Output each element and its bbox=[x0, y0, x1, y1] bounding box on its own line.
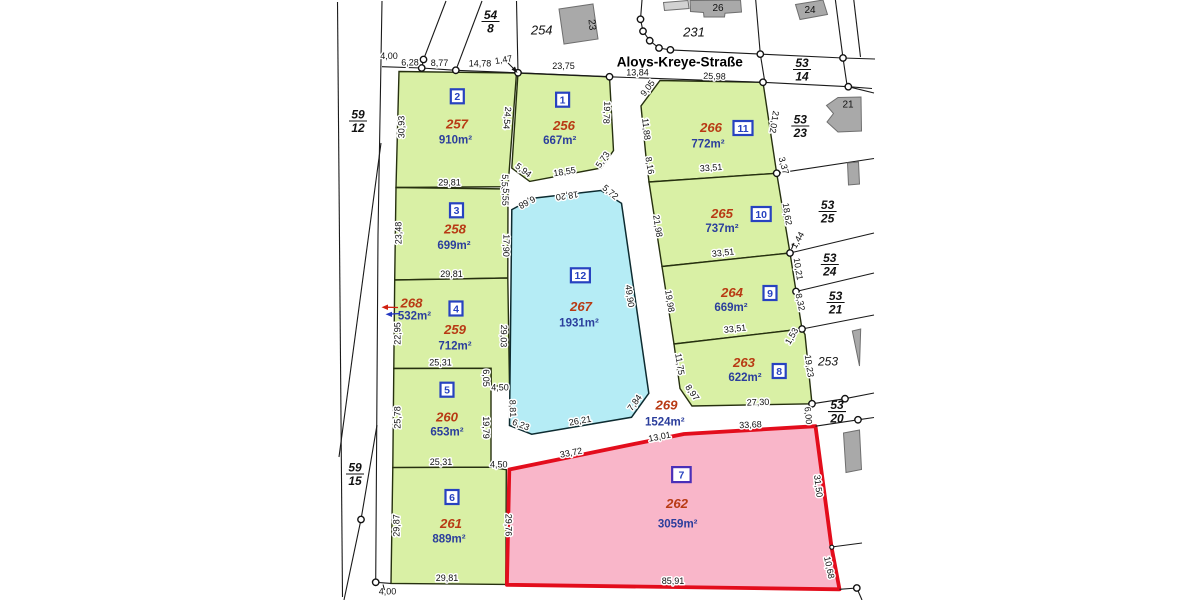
svg-text:53: 53 bbox=[829, 289, 843, 303]
svg-text:29,87: 29,87 bbox=[392, 514, 402, 537]
svg-text:22,95: 22,95 bbox=[393, 322, 403, 345]
svg-text:21: 21 bbox=[842, 100, 854, 111]
svg-text:254: 254 bbox=[530, 23, 553, 38]
svg-text:11: 11 bbox=[737, 123, 748, 135]
svg-text:15: 15 bbox=[348, 474, 362, 488]
svg-text:12: 12 bbox=[351, 121, 365, 135]
svg-text:23,75: 23,75 bbox=[552, 61, 575, 71]
svg-text:4,00: 4,00 bbox=[379, 587, 397, 597]
svg-text:5: 5 bbox=[444, 385, 450, 397]
svg-text:26: 26 bbox=[712, 3, 724, 14]
svg-text:231: 231 bbox=[682, 25, 705, 40]
svg-text:25: 25 bbox=[820, 212, 835, 226]
svg-text:889m²: 889m² bbox=[432, 533, 465, 545]
svg-text:532m²: 532m² bbox=[398, 311, 431, 323]
svg-text:260: 260 bbox=[435, 409, 459, 424]
svg-text:19,78: 19,78 bbox=[601, 101, 612, 124]
svg-text:4,00: 4,00 bbox=[380, 51, 398, 61]
svg-text:25,31: 25,31 bbox=[430, 457, 453, 467]
svg-text:737m²: 737m² bbox=[705, 223, 738, 235]
svg-text:85,91: 85,91 bbox=[662, 576, 685, 586]
svg-text:4: 4 bbox=[453, 303, 459, 315]
svg-text:258: 258 bbox=[443, 222, 467, 237]
svg-text:17,90: 17,90 bbox=[501, 234, 511, 257]
svg-text:20: 20 bbox=[829, 412, 844, 426]
svg-text:2: 2 bbox=[454, 91, 460, 103]
svg-text:59: 59 bbox=[348, 461, 362, 475]
svg-text:266: 266 bbox=[699, 120, 723, 135]
svg-text:25,78: 25,78 bbox=[393, 406, 403, 429]
svg-text:653m²: 653m² bbox=[430, 427, 463, 439]
svg-text:10: 10 bbox=[755, 209, 767, 221]
svg-text:269: 269 bbox=[654, 397, 678, 412]
svg-text:3: 3 bbox=[454, 205, 460, 217]
svg-text:1524m²: 1524m² bbox=[645, 417, 685, 429]
svg-text:23: 23 bbox=[793, 126, 808, 140]
svg-text:5,55: 5,55 bbox=[500, 188, 511, 206]
svg-text:25,31: 25,31 bbox=[429, 358, 452, 368]
svg-text:53: 53 bbox=[821, 198, 835, 212]
svg-text:29,81: 29,81 bbox=[440, 269, 463, 279]
svg-text:267: 267 bbox=[569, 299, 593, 314]
svg-text:12: 12 bbox=[575, 270, 587, 282]
svg-text:8: 8 bbox=[487, 22, 494, 36]
svg-text:29,03: 29,03 bbox=[499, 325, 509, 348]
svg-text:21: 21 bbox=[828, 303, 843, 317]
svg-text:30,93: 30,93 bbox=[397, 116, 407, 139]
svg-text:6,28: 6,28 bbox=[401, 58, 419, 68]
svg-text:8,77: 8,77 bbox=[431, 58, 449, 68]
svg-text:910m²: 910m² bbox=[439, 134, 472, 146]
svg-text:24,54: 24,54 bbox=[501, 106, 513, 129]
svg-text:669m²: 669m² bbox=[714, 302, 747, 314]
svg-text:8,81: 8,81 bbox=[507, 400, 518, 418]
svg-text:29,76: 29,76 bbox=[504, 514, 514, 537]
svg-text:13,84: 13,84 bbox=[626, 68, 649, 78]
svg-text:14,78: 14,78 bbox=[469, 59, 492, 69]
svg-text:1: 1 bbox=[560, 95, 566, 107]
svg-text:6: 6 bbox=[449, 492, 455, 504]
svg-text:253: 253 bbox=[817, 355, 838, 369]
svg-text:4,50: 4,50 bbox=[490, 460, 508, 470]
svg-text:699m²: 699m² bbox=[437, 240, 470, 252]
svg-text:259: 259 bbox=[443, 322, 467, 337]
svg-text:53: 53 bbox=[794, 113, 808, 127]
svg-text:25,98: 25,98 bbox=[703, 71, 726, 82]
svg-text:712m²: 712m² bbox=[438, 341, 471, 353]
svg-text:6,05: 6,05 bbox=[481, 369, 491, 387]
svg-text:256: 256 bbox=[552, 118, 576, 133]
svg-text:264: 264 bbox=[720, 285, 744, 300]
svg-text:3059m²: 3059m² bbox=[658, 519, 698, 531]
svg-text:4,50: 4,50 bbox=[491, 383, 509, 393]
svg-text:261: 261 bbox=[439, 516, 462, 531]
svg-text:268: 268 bbox=[399, 296, 423, 311]
svg-text:53: 53 bbox=[823, 251, 837, 265]
svg-text:53: 53 bbox=[795, 56, 809, 70]
svg-text:265: 265 bbox=[710, 206, 734, 221]
svg-text:6,00: 6,00 bbox=[803, 406, 814, 424]
svg-text:8: 8 bbox=[776, 366, 782, 378]
svg-text:19,79: 19,79 bbox=[481, 416, 491, 439]
svg-text:263: 263 bbox=[732, 355, 756, 370]
svg-text:622m²: 622m² bbox=[728, 372, 761, 384]
svg-text:23,48: 23,48 bbox=[394, 222, 404, 245]
svg-text:29,81: 29,81 bbox=[438, 178, 461, 188]
svg-text:27,30: 27,30 bbox=[747, 397, 770, 408]
svg-text:257: 257 bbox=[445, 116, 469, 131]
svg-text:29,81: 29,81 bbox=[436, 573, 459, 583]
svg-text:53: 53 bbox=[830, 398, 844, 412]
svg-text:33,68: 33,68 bbox=[739, 419, 762, 430]
svg-text:59: 59 bbox=[351, 108, 365, 122]
svg-text:772m²: 772m² bbox=[691, 138, 724, 150]
svg-text:24: 24 bbox=[804, 5, 816, 16]
svg-text:667m²: 667m² bbox=[543, 135, 576, 147]
svg-text:33,51: 33,51 bbox=[699, 162, 722, 174]
svg-text:24: 24 bbox=[822, 265, 837, 279]
svg-text:54: 54 bbox=[484, 8, 498, 22]
svg-text:1931m²: 1931m² bbox=[559, 317, 599, 329]
svg-text:23: 23 bbox=[586, 19, 598, 31]
svg-text:9: 9 bbox=[767, 288, 773, 300]
svg-text:14: 14 bbox=[795, 70, 809, 84]
svg-text:262: 262 bbox=[665, 496, 689, 511]
svg-text:7: 7 bbox=[678, 469, 684, 481]
